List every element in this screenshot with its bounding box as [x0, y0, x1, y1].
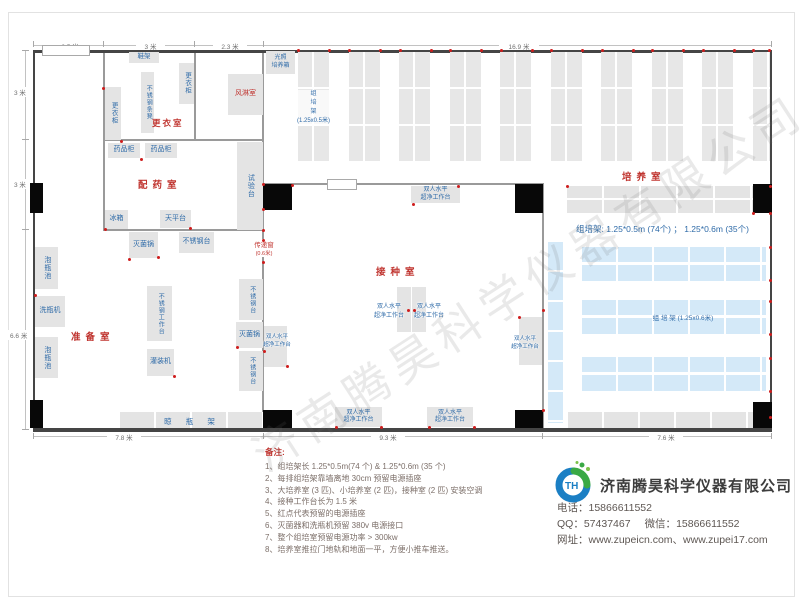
note-item: 6、灭菌器和洗瓶机预留 380v 电源接口	[265, 520, 555, 532]
power-outlet-dot	[733, 49, 736, 52]
power-outlet-dot	[297, 49, 300, 52]
power-outlet-dot	[769, 390, 772, 393]
power-outlet-dot	[120, 140, 123, 143]
medicine-cabinet: 药品柜	[145, 143, 177, 158]
dimension-tick	[194, 41, 195, 47]
notes-title: 备注:	[265, 446, 555, 458]
power-outlet-dot	[769, 416, 772, 419]
dim-label: 7.6 米	[649, 432, 683, 442]
power-outlet-dot	[262, 261, 265, 264]
power-outlet-dot	[531, 49, 534, 52]
web-label: 网址：	[557, 534, 589, 546]
clean-bench: 双人水平 超净工作台	[411, 186, 460, 203]
power-outlet-dot	[128, 258, 131, 261]
power-outlet-dot	[500, 49, 503, 52]
power-outlet-dot	[550, 49, 553, 52]
power-outlet-dot	[407, 309, 410, 312]
power-outlet-dot	[236, 346, 239, 349]
dim-label: 3 米	[12, 87, 28, 97]
pillar	[515, 184, 543, 213]
power-outlet-dot	[413, 309, 416, 312]
room-label-inoculation: 接种室	[376, 264, 420, 278]
culture-rack-horizontal	[567, 186, 753, 213]
dim-label: 9.3 米	[371, 432, 405, 442]
entry-door	[42, 45, 90, 56]
rack-summary: 组培架: 1.25*0.5m (74个) ； 1.25*0.6m (35个)	[560, 223, 765, 235]
dimension-tick	[771, 41, 772, 47]
power-outlet-dot	[542, 309, 545, 312]
stainless-table: 不锈钢台	[179, 232, 214, 253]
room-label-prep: 准备室	[71, 329, 115, 343]
power-outlet-dot	[769, 300, 772, 303]
filling-machine: 灌装机	[147, 349, 174, 376]
power-outlet-dot	[769, 185, 772, 188]
wall-inoculation-right	[542, 183, 544, 428]
culture-rack-label: 组 培 架 (1.25x0.5米)	[295, 90, 332, 126]
pass-window-size: (0.6米)	[245, 249, 283, 257]
power-outlet-dot	[769, 279, 772, 282]
phone-number: 15866611552	[589, 502, 652, 514]
power-outlet-dot	[380, 426, 383, 429]
wall-changing-bottom	[103, 139, 264, 141]
clean-bench: 双人水平 超净工作台	[335, 407, 382, 427]
power-outlet-dot	[480, 49, 483, 52]
dimension-tick	[103, 41, 104, 47]
stainless-table: 不锈钢台	[239, 279, 263, 320]
power-outlet-dot	[651, 49, 654, 52]
stainless-worktable: 不锈钢工作台	[147, 286, 172, 341]
power-outlet-dot	[140, 158, 143, 161]
power-outlet-dot	[581, 49, 584, 52]
pillar	[753, 402, 772, 428]
power-outlet-dot	[632, 49, 635, 52]
culture-rack	[399, 52, 430, 163]
note-item: 1、组培架长 1.25*0.5m(74 个) & 1.25*0.6m (35 个…	[265, 461, 555, 473]
logo-text: TH	[565, 481, 578, 492]
culture-rack	[652, 52, 683, 163]
clean-bench-label: 双人水平 超净工作台	[507, 334, 543, 350]
power-outlet-dot	[449, 49, 452, 52]
culture-rack	[702, 52, 733, 163]
dimension-tick	[263, 433, 264, 439]
power-outlet-dot	[291, 184, 294, 187]
locker: 更衣柜	[179, 63, 194, 104]
power-outlet-dot	[702, 49, 705, 52]
sterilizer: 灭菌锅	[129, 232, 158, 258]
culture-rack	[349, 52, 380, 163]
qq-wechat-line: QQ：57437467微信：15866611552	[557, 516, 740, 531]
stainless-table: 不锈钢台	[239, 351, 263, 391]
power-outlet-dot	[542, 409, 545, 412]
power-outlet-dot	[379, 49, 382, 52]
dim-label: 3 米	[12, 179, 28, 189]
note-item: 4、接种工作台长为 1.5 米	[265, 496, 555, 508]
power-outlet-dot	[104, 228, 107, 231]
pillar	[263, 184, 292, 210]
test-bench: 试验台	[237, 142, 263, 230]
wechat-label: 微信：	[645, 518, 677, 530]
dimension-tick	[22, 429, 29, 430]
notes-section: 备注: 1、组培架长 1.25*0.5m(74 个) & 1.25*0.6m (…	[265, 446, 555, 555]
power-outlet-dot	[769, 333, 772, 336]
room-label-dispensing: 配药室	[138, 177, 182, 191]
power-outlet-dot	[286, 365, 289, 368]
power-outlet-dot	[682, 49, 685, 52]
culture-rack	[551, 52, 582, 163]
fridge: 冰箱	[105, 210, 128, 229]
power-outlet-dot	[263, 350, 266, 353]
power-outlet-dot	[566, 185, 569, 188]
note-item: 7、整个组培室预留电源功率 > 300kw	[265, 532, 555, 544]
power-outlet-dot	[262, 239, 265, 242]
power-outlet-dot	[601, 49, 604, 52]
room-label-culture: 培养室	[622, 169, 666, 183]
power-outlet-dot	[769, 246, 772, 249]
qq-number: 57437467	[584, 518, 631, 530]
room-label-changing: 更衣室	[152, 117, 184, 129]
power-outlet-dot	[473, 426, 476, 429]
culture-rack-blue	[582, 357, 766, 391]
power-outlet-dot	[518, 316, 521, 319]
note-item: 2、每排组培架靠墙离地 30cm 预留电源插座	[265, 473, 555, 485]
power-outlet-dot	[769, 357, 772, 360]
dimension-line-left	[25, 50, 26, 430]
web-urls: www.zupeicn.com、www.zupei17.com	[589, 534, 768, 546]
power-outlet-dot	[752, 212, 755, 215]
wall-changing-right	[194, 50, 196, 141]
bottle-soak-pool: 泡瓶池	[35, 247, 58, 289]
culture-rack-blue	[548, 242, 563, 423]
wall-bottom	[33, 428, 772, 432]
dimension-tick	[263, 41, 264, 47]
culture-rack	[753, 52, 771, 163]
phone-label: 电话：	[557, 502, 589, 514]
note-item: 8、培养室推拉门地轨和地面一平，方便小推车推送。	[265, 544, 555, 556]
power-outlet-dot	[262, 208, 265, 211]
dimension-tick	[542, 433, 543, 439]
bottle-dry-rack-label: 晾 瓶 架	[150, 416, 235, 427]
wall-right	[770, 50, 772, 432]
power-outlet-dot	[157, 256, 160, 259]
note-item: 3、大培养室 (3 匹)、小培养室 (2 匹)，接种室 (2 匹) 安装空调	[265, 485, 555, 497]
culture-rack-blue	[582, 247, 766, 281]
culture-rack-area	[264, 52, 770, 163]
wall-culture-bottom	[264, 183, 544, 185]
qq-label: QQ：	[557, 518, 584, 530]
clean-bench: 双人水平 超净工作台	[427, 407, 473, 427]
website-line: 网址：www.zupeicn.com、www.zupei17.com	[557, 532, 768, 547]
pillar	[753, 184, 772, 213]
dimension-tick	[33, 433, 34, 439]
power-outlet-dot	[173, 375, 176, 378]
note-item: 5、红点代表预留的电源插座	[265, 508, 555, 520]
power-outlet-dot	[328, 49, 331, 52]
dimension-tick	[771, 433, 772, 439]
blue-rack-label: 组 培 架 (1.25x0.6米)	[638, 312, 728, 322]
power-outlet-dot	[34, 294, 37, 297]
power-outlet-dot	[189, 227, 192, 230]
power-outlet-dot	[335, 426, 338, 429]
culture-rack-bottom	[568, 412, 753, 428]
air-shower-room: 风淋室	[228, 74, 263, 115]
inoculation-door	[327, 179, 357, 190]
pillar	[30, 183, 43, 213]
wechat-number: 15866611552	[676, 518, 739, 530]
culture-rack	[601, 52, 632, 163]
company-name: 济南腾昊科学仪器有限公司	[600, 475, 792, 496]
power-outlet-dot	[768, 49, 771, 52]
power-outlet-dot	[430, 49, 433, 52]
floor-plan-page: 鞋架 更衣柜 不锈钢条凳 更衣柜 更衣室 风淋室 光照 培养箱 药品柜 药品柜 …	[0, 0, 800, 600]
power-outlet-dot	[399, 49, 402, 52]
power-outlet-dot	[262, 229, 265, 232]
dim-label: 6.6 米	[8, 330, 29, 340]
power-outlet-dot	[769, 212, 772, 215]
bottle-washer: 洗瓶机	[35, 296, 65, 327]
balance-table: 天平台	[160, 210, 191, 228]
culture-rack	[450, 52, 481, 163]
clean-bench-label: 双人水平 超净工作台	[367, 301, 411, 319]
power-outlet-dot	[102, 87, 105, 90]
shoe-rack: 鞋架	[129, 52, 159, 63]
dimension-tick	[33, 41, 34, 47]
power-outlet-dot	[428, 426, 431, 429]
power-outlet-dot	[457, 185, 460, 188]
bottle-soak-pool: 泡瓶池	[35, 337, 58, 378]
power-outlet-dot	[412, 203, 415, 206]
dim-label: 7.8 米	[107, 432, 141, 442]
phone-line: 电话：15866611552	[557, 500, 652, 515]
power-outlet-dot	[348, 49, 351, 52]
locker: 更衣柜	[105, 87, 121, 140]
power-outlet-dot	[262, 183, 265, 186]
power-outlet-dot	[752, 49, 755, 52]
dimension-tick	[22, 139, 29, 140]
medicine-cabinet: 药品柜	[108, 143, 140, 158]
pillar	[515, 410, 543, 428]
dimension-tick	[22, 229, 29, 230]
dimension-tick	[22, 50, 29, 51]
culture-rack	[500, 52, 531, 163]
pillar	[30, 400, 43, 428]
pillar	[263, 410, 292, 428]
clean-bench-label: 双人水平 超净工作台	[259, 332, 295, 348]
